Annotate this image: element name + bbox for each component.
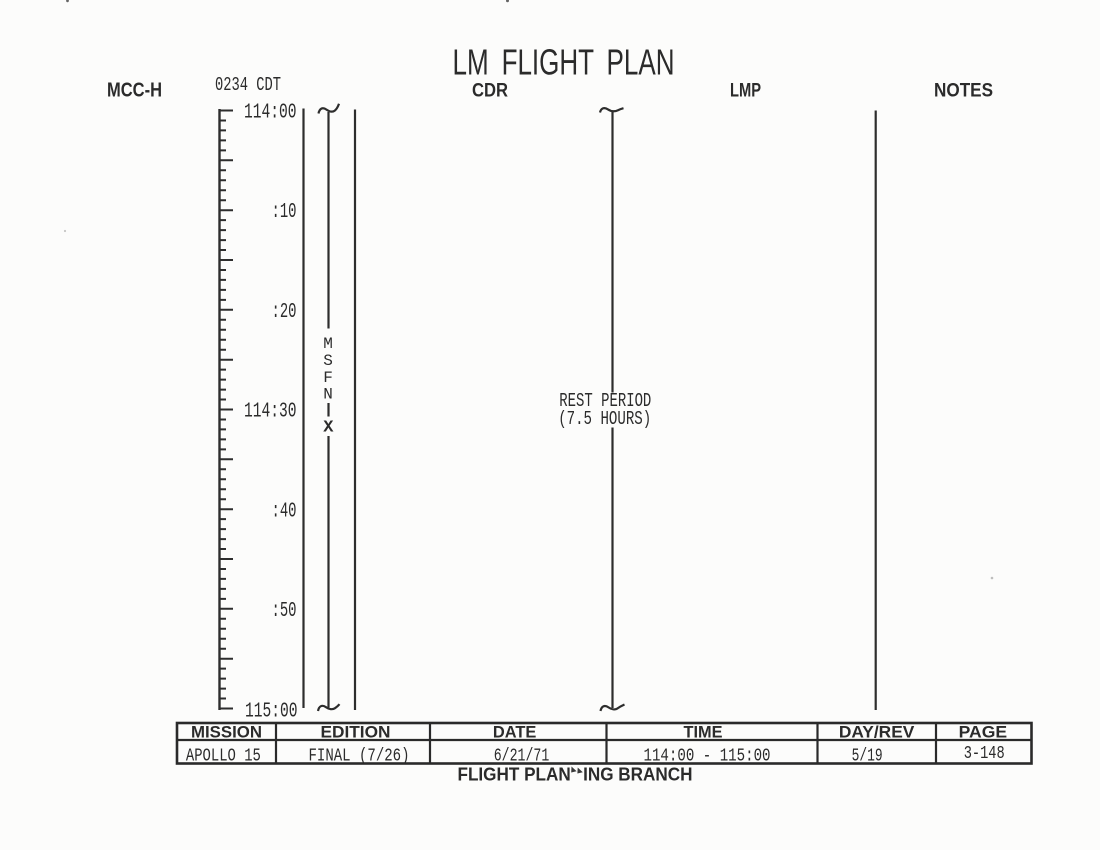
svg-text:LM FLIGHT PLAN: LM FLIGHT PLAN (453, 42, 675, 83)
svg-text:5/19: 5/19 (852, 746, 883, 767)
svg-text:LMP: LMP (730, 81, 761, 102)
svg-text:PAGE: PAGE (959, 723, 1008, 742)
svg-text:114:00 - 115:00: 114:00 - 115:00 (644, 746, 771, 767)
svg-text:115:00: 115:00 (245, 701, 298, 724)
svg-text:FINAL (7/26): FINAL (7/26) (309, 746, 410, 767)
svg-text:DATE: DATE (493, 723, 537, 742)
svg-text::20: :20 (272, 301, 297, 324)
svg-text:6/21/71: 6/21/71 (494, 746, 550, 767)
svg-text:DAY/REV: DAY/REV (839, 723, 915, 742)
svg-text::10: :10 (272, 201, 297, 224)
svg-text:MCC-H: MCC-H (107, 80, 162, 102)
svg-text:TIME: TIME (684, 723, 723, 742)
svg-text:CDR: CDR (472, 81, 508, 102)
svg-text:APOLLO 15: APOLLO 15 (186, 746, 261, 767)
svg-text:EDITION: EDITION (321, 723, 391, 742)
svg-text::50: :50 (272, 600, 297, 623)
svg-text::40: :40 (272, 500, 297, 523)
svg-text:NOTES: NOTES (934, 81, 993, 102)
svg-text:114:30: 114:30 (244, 401, 297, 424)
svg-text:S: S (323, 352, 333, 370)
svg-text:114:00: 114:00 (244, 101, 297, 124)
svg-text:N: N (323, 386, 333, 404)
svg-text:M: M (323, 335, 333, 353)
svg-text:X: X (323, 419, 334, 438)
svg-text:0234 CDT: 0234 CDT (215, 74, 281, 96)
svg-text:3-148: 3-148 (964, 743, 1005, 764)
svg-text:F: F (323, 369, 333, 387)
svg-text:MISSION: MISSION (191, 723, 262, 742)
svg-text:(7.5 HOURS): (7.5 HOURS) (558, 408, 651, 430)
